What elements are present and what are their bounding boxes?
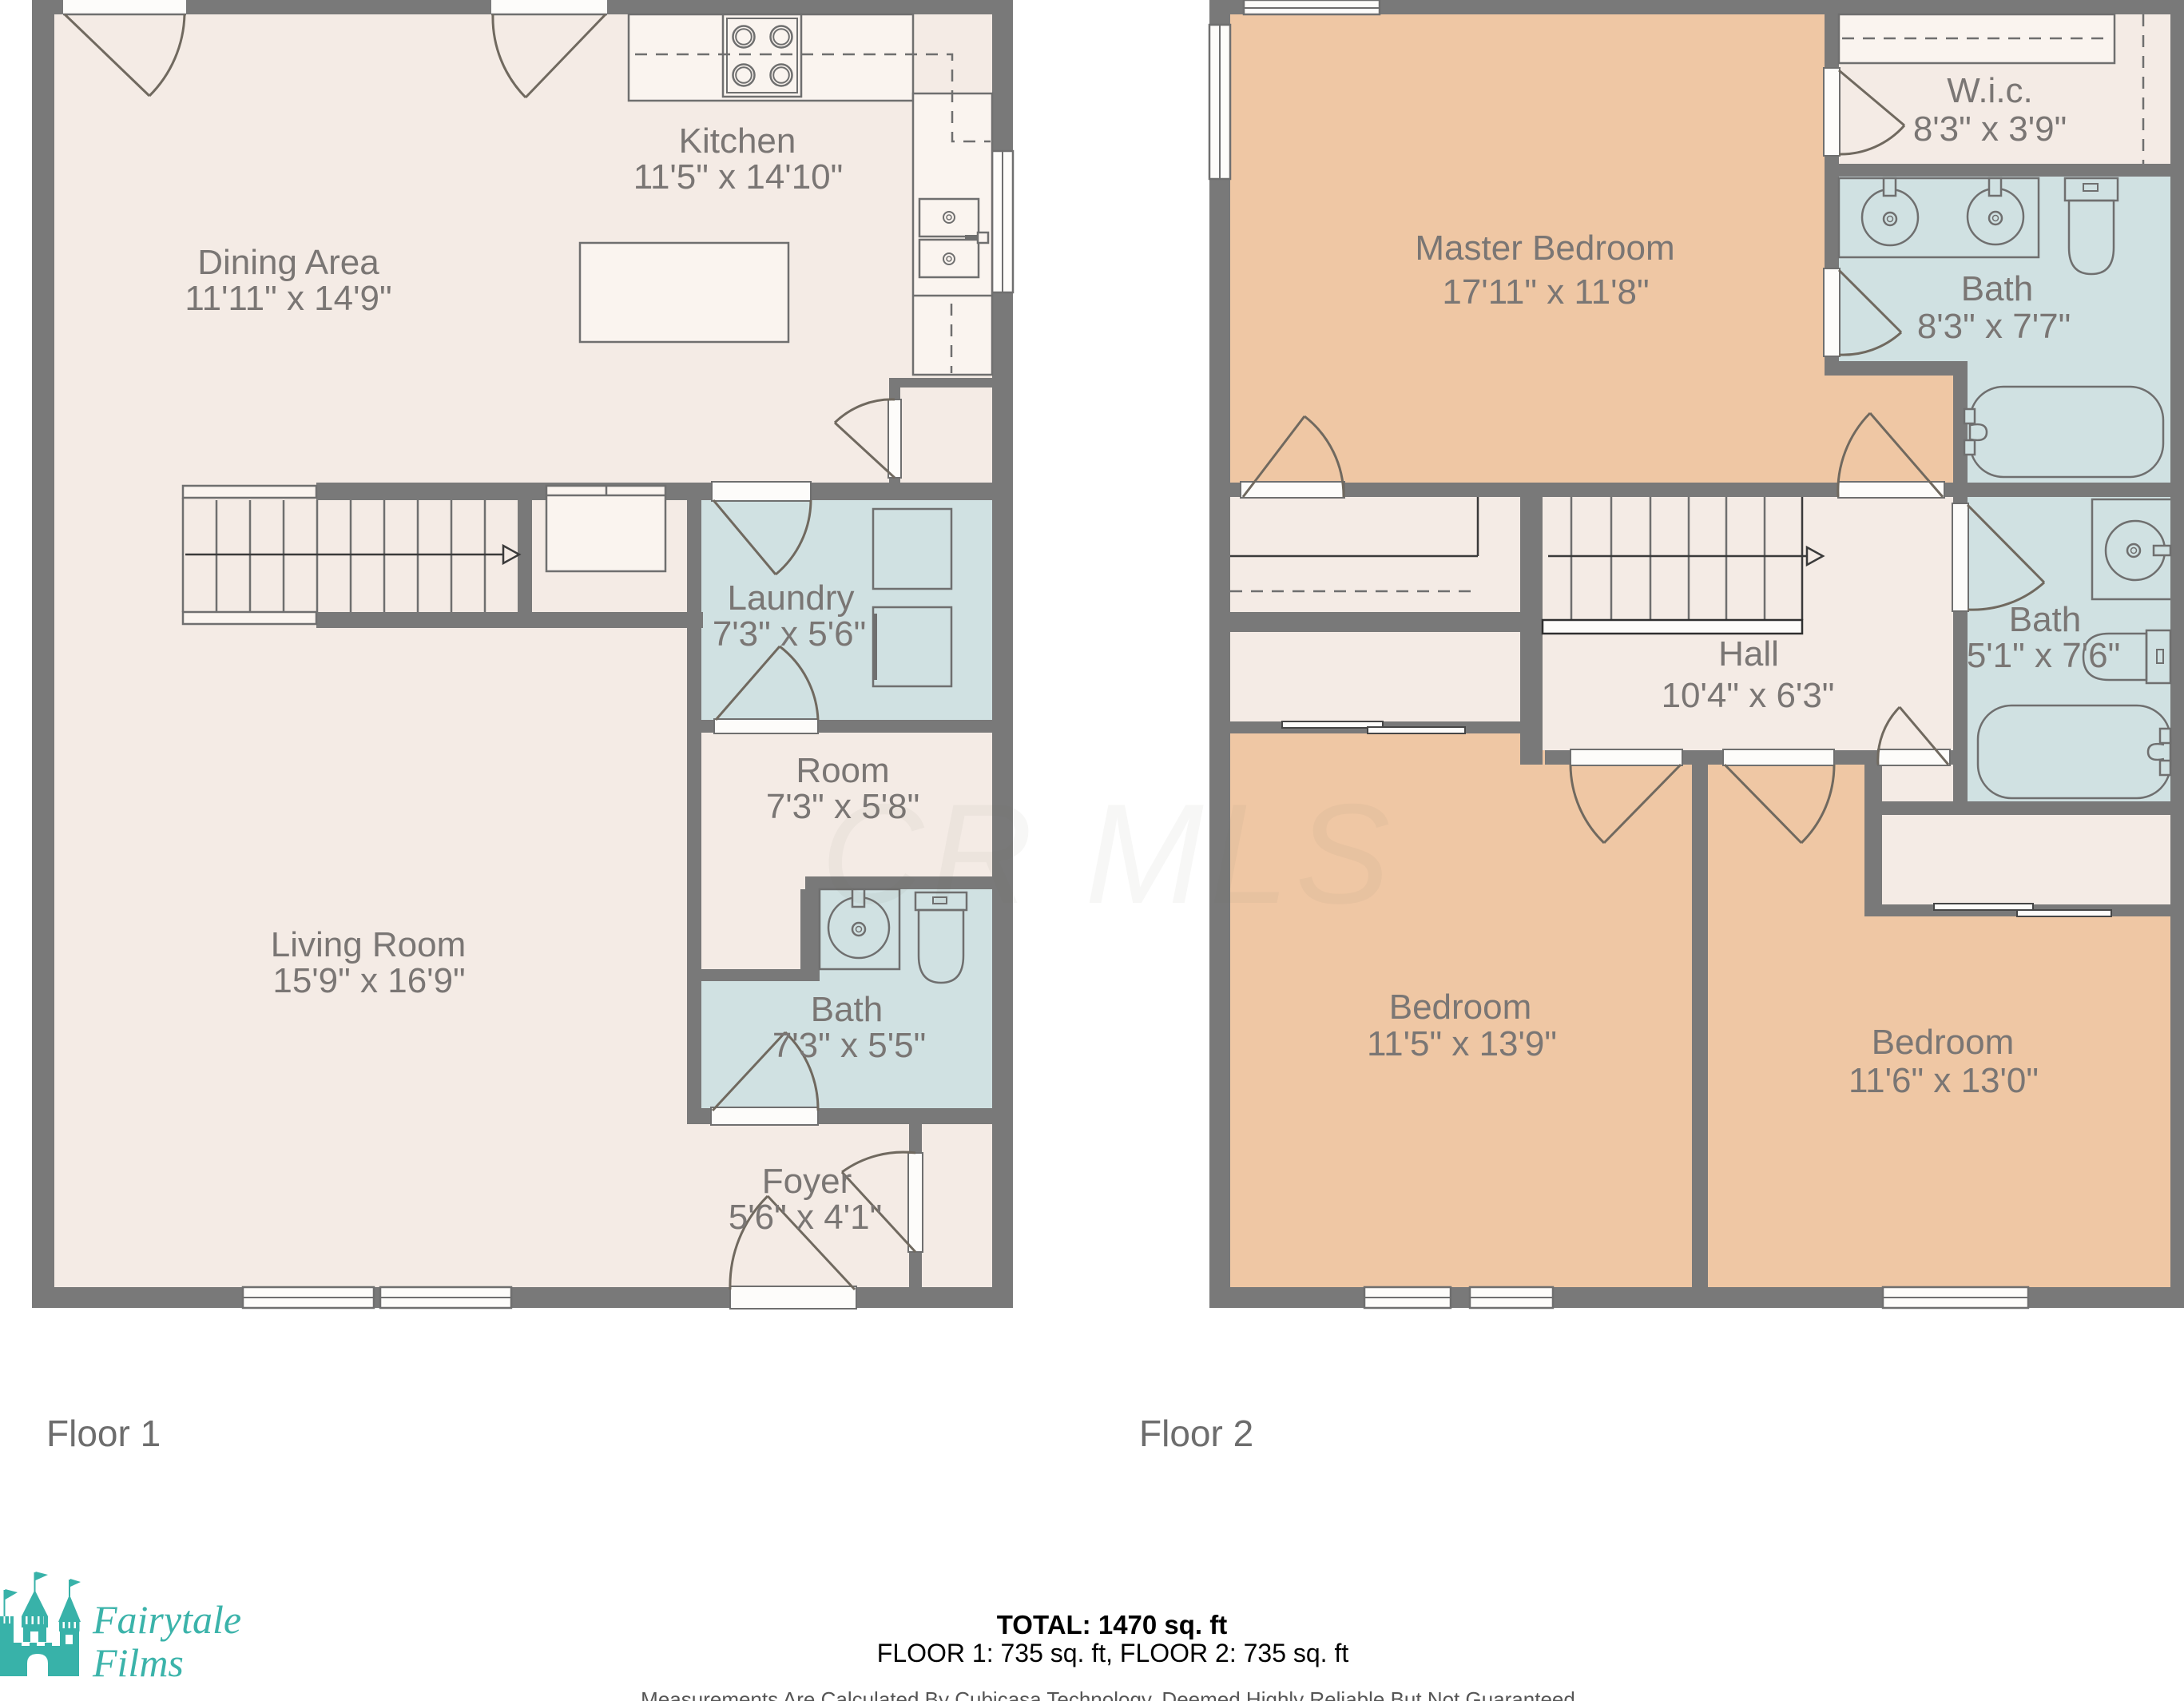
svg-text:Bath: Bath: [811, 990, 884, 1029]
svg-text:11'5" x 14'10": 11'5" x 14'10": [633, 157, 844, 197]
svg-text:8'3" x 7'7": 8'3" x 7'7": [1917, 307, 2071, 346]
svg-text:5'6" x 4'1": 5'6" x 4'1": [729, 1198, 882, 1237]
svg-text:7'3" x 5'5": 7'3" x 5'5": [772, 1026, 926, 1065]
svg-text:5'1" x 7'6": 5'1" x 7'6": [1967, 636, 2120, 675]
svg-text:Bath: Bath: [1961, 269, 2034, 308]
svg-text:11'11" x 14'9": 11'11" x 14'9": [185, 279, 391, 318]
svg-text:Foyer: Foyer: [762, 1162, 852, 1201]
svg-text:Measurements Are Calculated By: Measurements Are Calculated By Cubicasa …: [641, 1687, 1575, 1701]
svg-text:Bedroom: Bedroom: [1389, 988, 1532, 1027]
svg-text:Floor 1: Floor 1: [46, 1413, 161, 1454]
svg-text:7'3" x 5'6": 7'3" x 5'6": [713, 614, 866, 654]
svg-text:CR MLS: CR MLS: [821, 774, 1397, 933]
svg-text:Living Room: Living Room: [271, 925, 467, 964]
svg-text:Master Bedroom: Master Bedroom: [1415, 229, 1674, 268]
svg-text:Dining Area: Dining Area: [197, 243, 379, 282]
svg-text:Bedroom: Bedroom: [1872, 1023, 2015, 1062]
svg-text:8'3" x 3'9": 8'3" x 3'9": [1913, 109, 2067, 149]
svg-text:17'11" x 11'8": 17'11" x 11'8": [1442, 272, 1649, 312]
svg-text:15'9" x 16'9": 15'9" x 16'9": [272, 961, 465, 1000]
svg-text:11'6" x 13'0": 11'6" x 13'0": [1848, 1061, 2039, 1100]
svg-text:Laundry: Laundry: [727, 578, 854, 618]
svg-text:11'5" x 13'9": 11'5" x 13'9": [1367, 1024, 1557, 1063]
svg-text:Floor 2: Floor 2: [1139, 1413, 1253, 1454]
svg-text:Hall: Hall: [1718, 634, 1779, 674]
svg-text:TOTAL: 1470 sq. ft: TOTAL: 1470 sq. ft: [997, 1610, 1228, 1639]
svg-text:Fairytale: Fairytale: [92, 1597, 241, 1642]
svg-text:Kitchen: Kitchen: [679, 121, 796, 161]
svg-text:Films: Films: [92, 1640, 184, 1685]
svg-text:W.i.c.: W.i.c.: [1947, 71, 2033, 110]
svg-text:FLOOR 1: 735 sq. ft, FLOOR 2:: FLOOR 1: 735 sq. ft, FLOOR 2: 735 sq. ft: [877, 1639, 1349, 1667]
svg-text:10'4" x 6'3": 10'4" x 6'3": [1662, 676, 1835, 715]
svg-text:Bath: Bath: [2009, 600, 2082, 639]
